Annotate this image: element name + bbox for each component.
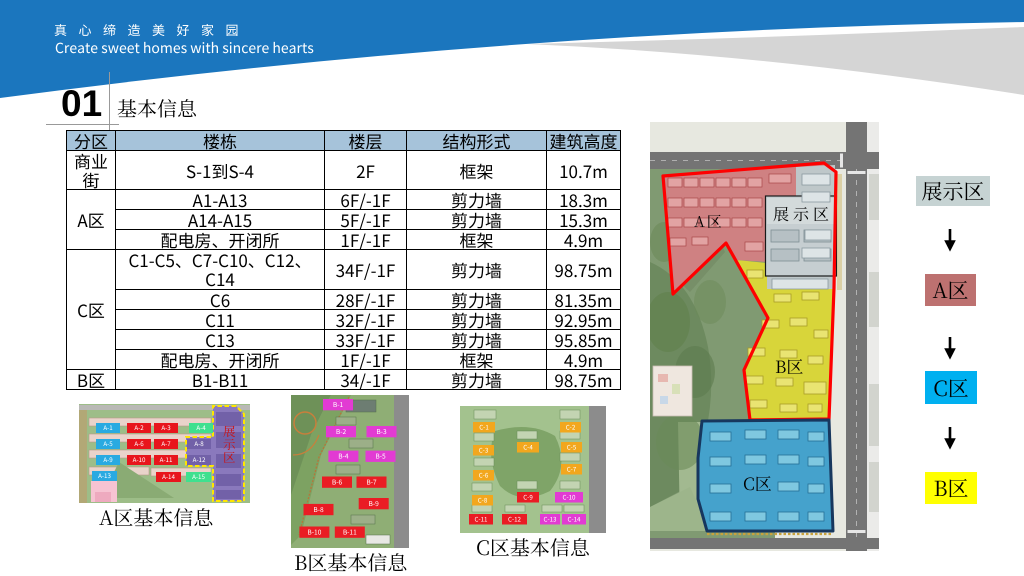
svg-text:B-10: B-10: [307, 527, 321, 537]
svg-text:A-2: A-2: [134, 423, 144, 432]
svg-text:C区: C区: [743, 470, 772, 495]
svg-text:C-7: C-7: [567, 464, 577, 473]
svg-text:A-6: A-6: [134, 439, 144, 448]
svg-text:C-8: C-8: [478, 495, 488, 504]
svg-text:B区: B区: [775, 353, 803, 378]
svg-text:C-2: C-2: [566, 422, 576, 431]
svg-text:B-7: B-7: [366, 477, 377, 487]
svg-text:A-14: A-14: [162, 472, 175, 481]
svg-text:A-5: A-5: [103, 439, 113, 448]
svg-text:A-4: A-4: [196, 423, 206, 432]
svg-text:B-9: B-9: [369, 498, 380, 508]
svg-text:C-5: C-5: [567, 442, 577, 451]
svg-text:B-5: B-5: [375, 451, 386, 461]
svg-text:B-3: B-3: [376, 426, 387, 436]
svg-text:A-11: A-11: [160, 455, 173, 464]
svg-text:展示区: 展示区: [773, 202, 833, 225]
svg-text:A-13: A-13: [98, 471, 111, 480]
svg-text:C-14: C-14: [568, 514, 582, 523]
svg-text:B-8: B-8: [313, 504, 324, 514]
svg-text:C-9: C-9: [523, 492, 533, 501]
svg-text:C-13: C-13: [544, 514, 558, 523]
svg-text:B-6: B-6: [332, 477, 343, 487]
svg-text:C-3: C-3: [479, 445, 489, 454]
svg-text:C-10: C-10: [563, 492, 577, 501]
svg-text:B-1: B-1: [333, 399, 344, 409]
svg-text:B-4: B-4: [338, 451, 349, 461]
svg-text:C-1: C-1: [479, 422, 489, 431]
svg-text:A-7: A-7: [161, 439, 171, 448]
svg-text:C-6: C-6: [479, 470, 489, 479]
svg-text:A-12: A-12: [193, 455, 206, 464]
svg-text:A-9: A-9: [103, 455, 113, 464]
svg-text:A-10: A-10: [133, 455, 146, 464]
svg-text:A-1: A-1: [103, 423, 113, 432]
svg-text:区: 区: [223, 448, 236, 466]
svg-text:C-4: C-4: [523, 442, 533, 451]
svg-text:A区: A区: [694, 211, 724, 232]
svg-text:A-3: A-3: [161, 423, 171, 432]
svg-text:B-2: B-2: [336, 426, 347, 436]
svg-text:B-11: B-11: [343, 527, 357, 537]
svg-text:A-8: A-8: [194, 439, 204, 448]
svg-text:C-12: C-12: [508, 514, 522, 523]
svg-text:A-15: A-15: [192, 472, 205, 481]
svg-text:C-11: C-11: [475, 514, 489, 523]
